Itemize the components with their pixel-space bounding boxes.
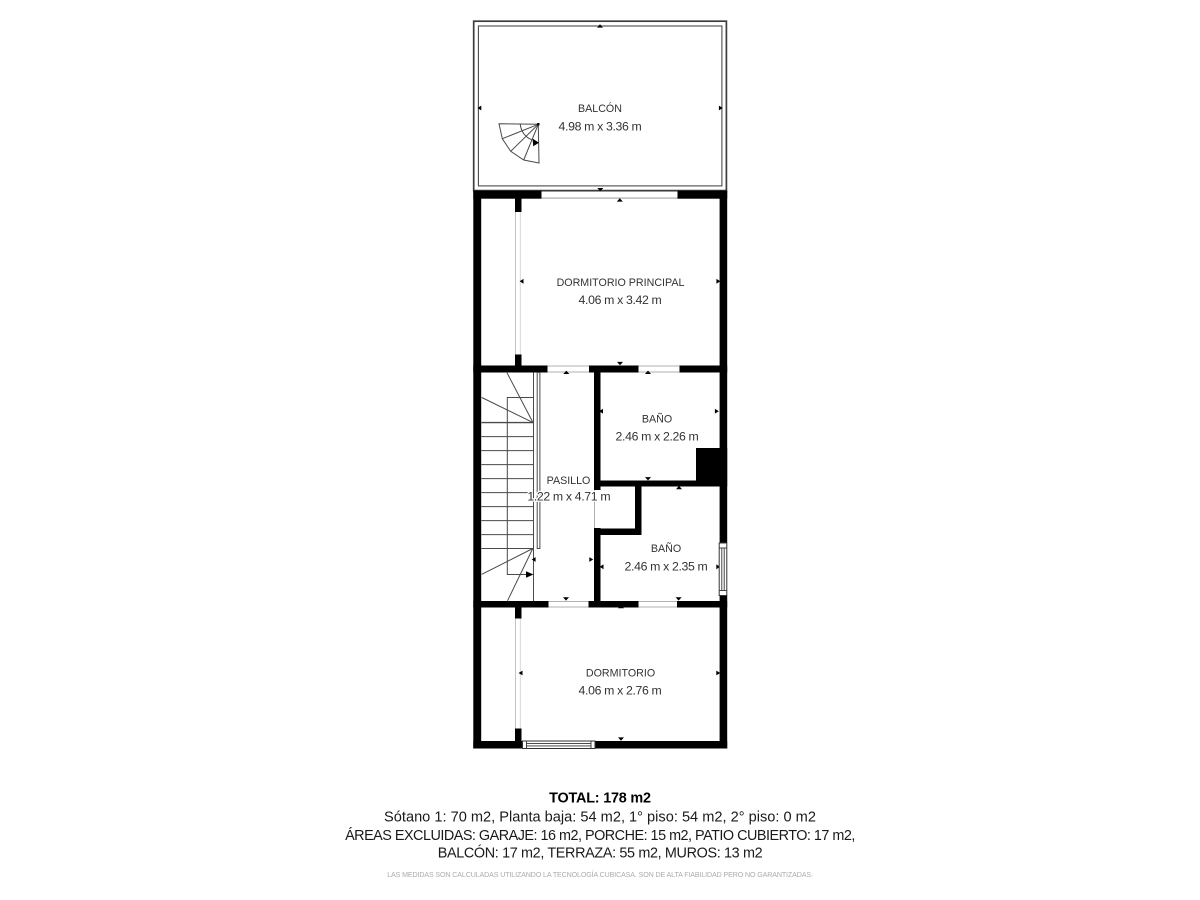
svg-text:4.06 m x 3.42 m: 4.06 m x 3.42 m	[579, 293, 662, 307]
svg-text:BAÑO: BAÑO	[642, 412, 672, 425]
svg-text:ÁREAS EXCLUIDAS: GARAJE: 16 m2: ÁREAS EXCLUIDAS: GARAJE: 16 m2, PORCHE: …	[345, 827, 855, 844]
svg-text:4.06 m x 2.76 m: 4.06 m x 2.76 m	[579, 684, 662, 698]
svg-text:1.22 m x 4.71 m: 1.22 m x 4.71 m	[527, 490, 610, 504]
svg-text:LAS MEDIDAS SON CALCULADAS UTI: LAS MEDIDAS SON CALCULADAS UTILIZANDO LA…	[387, 870, 813, 879]
svg-text:BALCÓN: BALCÓN	[578, 102, 622, 115]
svg-text:BAÑO: BAÑO	[651, 542, 681, 555]
svg-text:BALCÓN: 17 m2, TERRAZA: 55 m2,: BALCÓN: 17 m2, TERRAZA: 55 m2, MUROS: 13…	[438, 845, 763, 862]
svg-text:2.46 m x 2.35 m: 2.46 m x 2.35 m	[625, 560, 708, 574]
svg-text:Sótano 1: 70 m2, Planta baja:: Sótano 1: 70 m2, Planta baja: 54 m2, 1° …	[384, 810, 816, 826]
svg-text:DORMITORIO PRINCIPAL: DORMITORIO PRINCIPAL	[557, 277, 685, 289]
svg-text:2.46 m x 2.26 m: 2.46 m x 2.26 m	[616, 429, 699, 443]
svg-text:TOTAL: 178 m2: TOTAL: 178 m2	[549, 791, 651, 807]
svg-text:DORMITORIO: DORMITORIO	[586, 667, 655, 679]
svg-text:PASILLO: PASILLO	[547, 475, 591, 487]
svg-text:4.98 m x 3.36 m: 4.98 m x 3.36 m	[559, 120, 642, 134]
